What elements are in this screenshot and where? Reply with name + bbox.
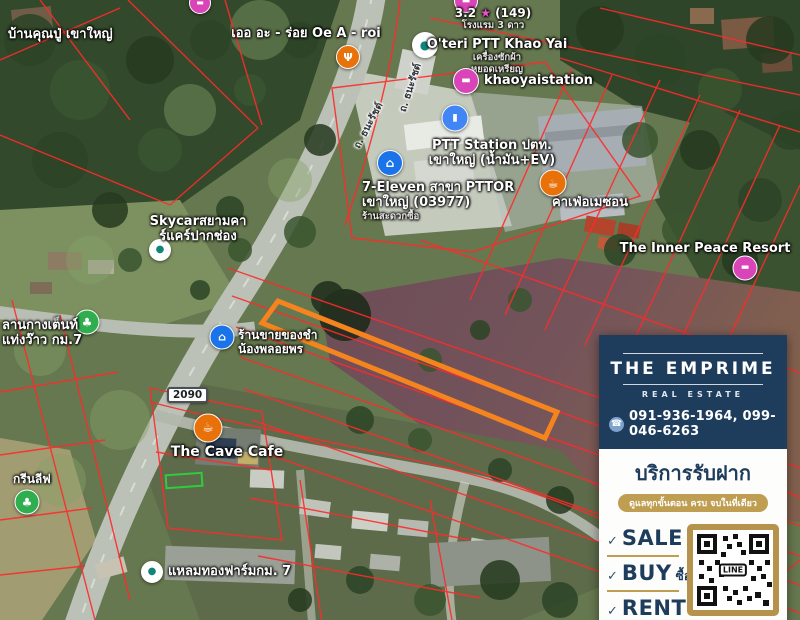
ad-item-en: BUY bbox=[622, 561, 672, 585]
poi-grocery-icon[interactable]: ⌂ bbox=[210, 325, 235, 350]
poi-khaoyaistation-icon[interactable]: ▬ bbox=[453, 68, 479, 94]
service-tagline: ดูแลทุกขั้นตอน ครบ จบในที่เดียว bbox=[618, 494, 768, 512]
poi-ptt-station-glyph: ▮ bbox=[452, 113, 458, 123]
poi-ban-khun-pu-glyph: ▬ bbox=[196, 0, 204, 7]
road-label-thanarat-1-label[interactable]: ถ. ธนะรัชต์ bbox=[352, 101, 386, 151]
ad-item-en: RENT bbox=[622, 596, 686, 620]
poi-laem-thong-farm-label[interactable]: แหลมทองฟาร์มกม. 7 bbox=[168, 564, 291, 579]
line-logo: LINE bbox=[719, 564, 747, 577]
ad-item-sale: ✓SALEขาย bbox=[607, 524, 681, 553]
brand-rule-bottom bbox=[623, 384, 763, 385]
line-qr-code: LINE bbox=[687, 524, 779, 616]
poi-hotel-rating-label[interactable]: 3.2 ★ (149)โรงแรม 3 ดาว bbox=[455, 6, 531, 31]
poi-green-leaf-icon[interactable]: ♣ bbox=[15, 490, 40, 515]
check-icon: ✓ bbox=[607, 569, 618, 584]
poi-tent-ground-glyph: ♣ bbox=[82, 316, 93, 328]
poi-grocery-glyph: ⌂ bbox=[218, 332, 226, 343]
poi-inner-peace-resort-icon[interactable]: ▬ bbox=[733, 256, 758, 281]
poi-cafe-amazon-icon[interactable]: ☕ bbox=[540, 170, 567, 197]
poi-khaoyaistation-label[interactable]: khaoyaistation bbox=[484, 73, 593, 88]
satellite-map-screenshot[interactable]: ▬บ้านคุณปู่ เขาใหญ่Ψเออ อะ - ร่อย Oe A -… bbox=[0, 0, 800, 620]
brand-rule-top bbox=[623, 353, 763, 354]
phone-row: ☎ 091-936-1964, 099-046-6263 bbox=[609, 409, 777, 439]
poi-ban-khun-pu-icon[interactable]: ▬ bbox=[189, 0, 211, 14]
phone-numbers: 091-936-1964, 099-046-6263 bbox=[629, 409, 777, 439]
poi-grocery-label[interactable]: ร้านขายของชำน้องพลอยพร bbox=[238, 328, 318, 356]
poi-ptt-station-label[interactable]: PTT Station ปตท.เขาใหญ่ (น้ำมัน+EV) bbox=[429, 138, 556, 169]
phone-icon: ☎ bbox=[609, 417, 624, 432]
ad-item-buy: ✓BUYซื้อ bbox=[607, 559, 681, 588]
ad-panel: THE EMPRIME REAL ESTATE ☎ 091-936-1964, … bbox=[599, 335, 787, 620]
ad-service-items: ✓SALEขาย✓BUYซื้อ✓RENTเช่า bbox=[607, 524, 681, 620]
poi-oe-a-roi-label[interactable]: เออ อะ - ร่อย Oe A - roi bbox=[231, 26, 380, 41]
poi-hotel-rating-glyph: ▬ bbox=[462, 0, 471, 6]
poi-cafe-amazon-glyph: ☕ bbox=[548, 177, 559, 189]
poi-inner-peace-resort-label[interactable]: The Inner Peace Resort bbox=[620, 241, 791, 256]
poi-laem-thong-farm-icon[interactable]: ● bbox=[141, 561, 163, 583]
poi-ban-khun-pu-label[interactable]: บ้านคุณปู่ เขาใหญ่ bbox=[8, 27, 113, 42]
check-icon: ✓ bbox=[607, 534, 618, 549]
poi-7-eleven-glyph: ⌂ bbox=[386, 157, 395, 169]
poi-green-leaf-label[interactable]: กรีนลีฟ bbox=[13, 472, 51, 486]
poi-7-eleven-label[interactable]: 7-Eleven สาขา PTTORเขาใหญ่ (03977)ร้านสะ… bbox=[362, 180, 514, 222]
star-icon: ★ bbox=[480, 6, 491, 20]
ad-item-en: SALE bbox=[622, 526, 683, 550]
road-badge-2090-label[interactable]: 2090 bbox=[167, 387, 208, 403]
poi-skycar-glyph: ● bbox=[156, 245, 165, 255]
poi-laem-thong-farm-glyph: ● bbox=[148, 567, 157, 577]
poi-cave-cafe-icon[interactable]: ☕ bbox=[194, 414, 223, 443]
poi-inner-peace-resort-glyph: ▬ bbox=[741, 264, 750, 273]
service-heading: บริการรับฝาก bbox=[607, 457, 779, 489]
poi-cafe-amazon-label[interactable]: คาเฟ่อเมซอน bbox=[552, 195, 628, 210]
brand-subtitle: REAL ESTATE bbox=[609, 390, 777, 399]
poi-skycar-label[interactable]: Skycarสยามคาร์แคร์ปากช่อง bbox=[150, 214, 247, 245]
item-separator bbox=[607, 555, 679, 557]
ad-service-section: บริการรับฝาก ดูแลทุกขั้นตอน ครบ จบในที่เ… bbox=[599, 449, 787, 620]
poi-oe-a-roi-glyph: Ψ bbox=[343, 52, 352, 63]
check-icon: ✓ bbox=[607, 604, 618, 619]
poi-oe-a-roi-icon[interactable]: Ψ bbox=[336, 45, 360, 69]
poi-green-leaf-glyph: ♣ bbox=[22, 496, 33, 508]
poi-oteri-label[interactable]: O'teri PTT Khao Yaiเครื่องซักผ้าหยอดเหรี… bbox=[427, 37, 568, 75]
road-label-thanarat-2-label[interactable]: ถ. ธนะรัชต์ bbox=[398, 62, 425, 113]
poi-cave-cafe-glyph: ☕ bbox=[202, 422, 214, 435]
ad-brand-section: THE EMPRIME REAL ESTATE ☎ 091-936-1964, … bbox=[599, 335, 787, 449]
poi-cave-cafe-label[interactable]: The Cave Cafe bbox=[171, 444, 283, 461]
brand-title: THE EMPRIME bbox=[609, 359, 777, 379]
ad-item-rent: ✓RENTเช่า bbox=[607, 594, 681, 620]
item-separator bbox=[607, 590, 679, 592]
poi-tent-ground-label[interactable]: ลานกางเต็นท์แท่งว๊าว กม.7 bbox=[2, 318, 82, 349]
poi-khaoyaistation-glyph: ▬ bbox=[461, 76, 470, 86]
poi-ptt-station-icon[interactable]: ▮ bbox=[442, 105, 469, 132]
poi-7-eleven-icon[interactable]: ⌂ bbox=[377, 150, 403, 176]
